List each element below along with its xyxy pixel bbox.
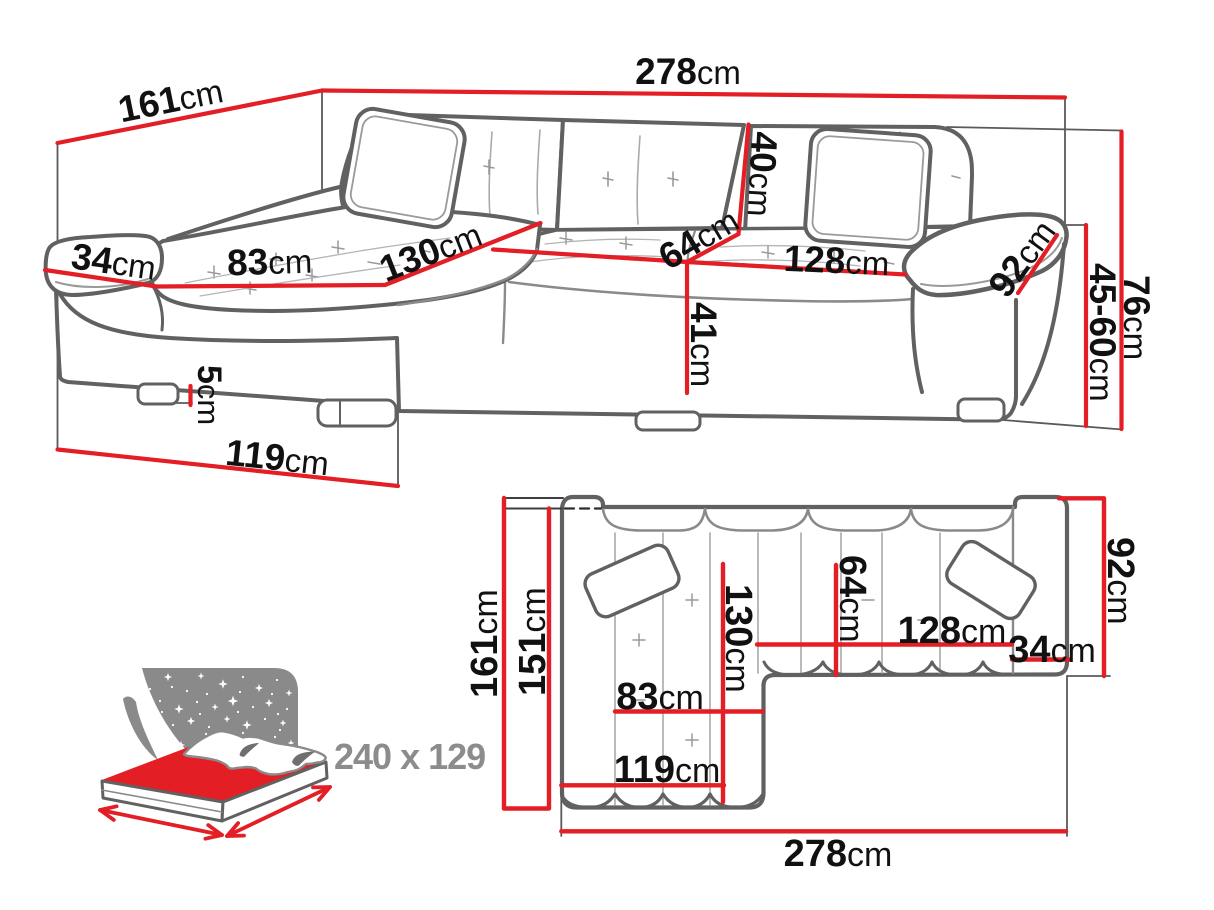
svg-text:151cm: 151cm <box>512 587 554 696</box>
svg-text:161cm: 161cm <box>464 589 506 698</box>
svg-text:92cm: 92cm <box>1099 537 1141 625</box>
svg-text:278cm: 278cm <box>784 833 893 875</box>
svg-text:128cm: 128cm <box>783 238 890 284</box>
svg-text:76cm: 76cm <box>1116 275 1157 360</box>
svg-text:5cm: 5cm <box>190 365 228 425</box>
svg-text:130cm: 130cm <box>717 584 759 693</box>
svg-text:40cm: 40cm <box>740 131 785 218</box>
svg-text:41cm: 41cm <box>683 302 724 387</box>
svg-text:240 x 129: 240 x 129 <box>334 736 485 777</box>
svg-text:83cm: 83cm <box>616 676 704 718</box>
svg-text:64cm: 64cm <box>831 555 873 643</box>
svg-text:119cm: 119cm <box>614 749 721 791</box>
svg-text:128cm: 128cm <box>898 610 1007 652</box>
svg-text:83cm: 83cm <box>226 240 313 284</box>
svg-text:34cm: 34cm <box>1008 629 1096 671</box>
svg-text:278cm: 278cm <box>635 51 741 92</box>
